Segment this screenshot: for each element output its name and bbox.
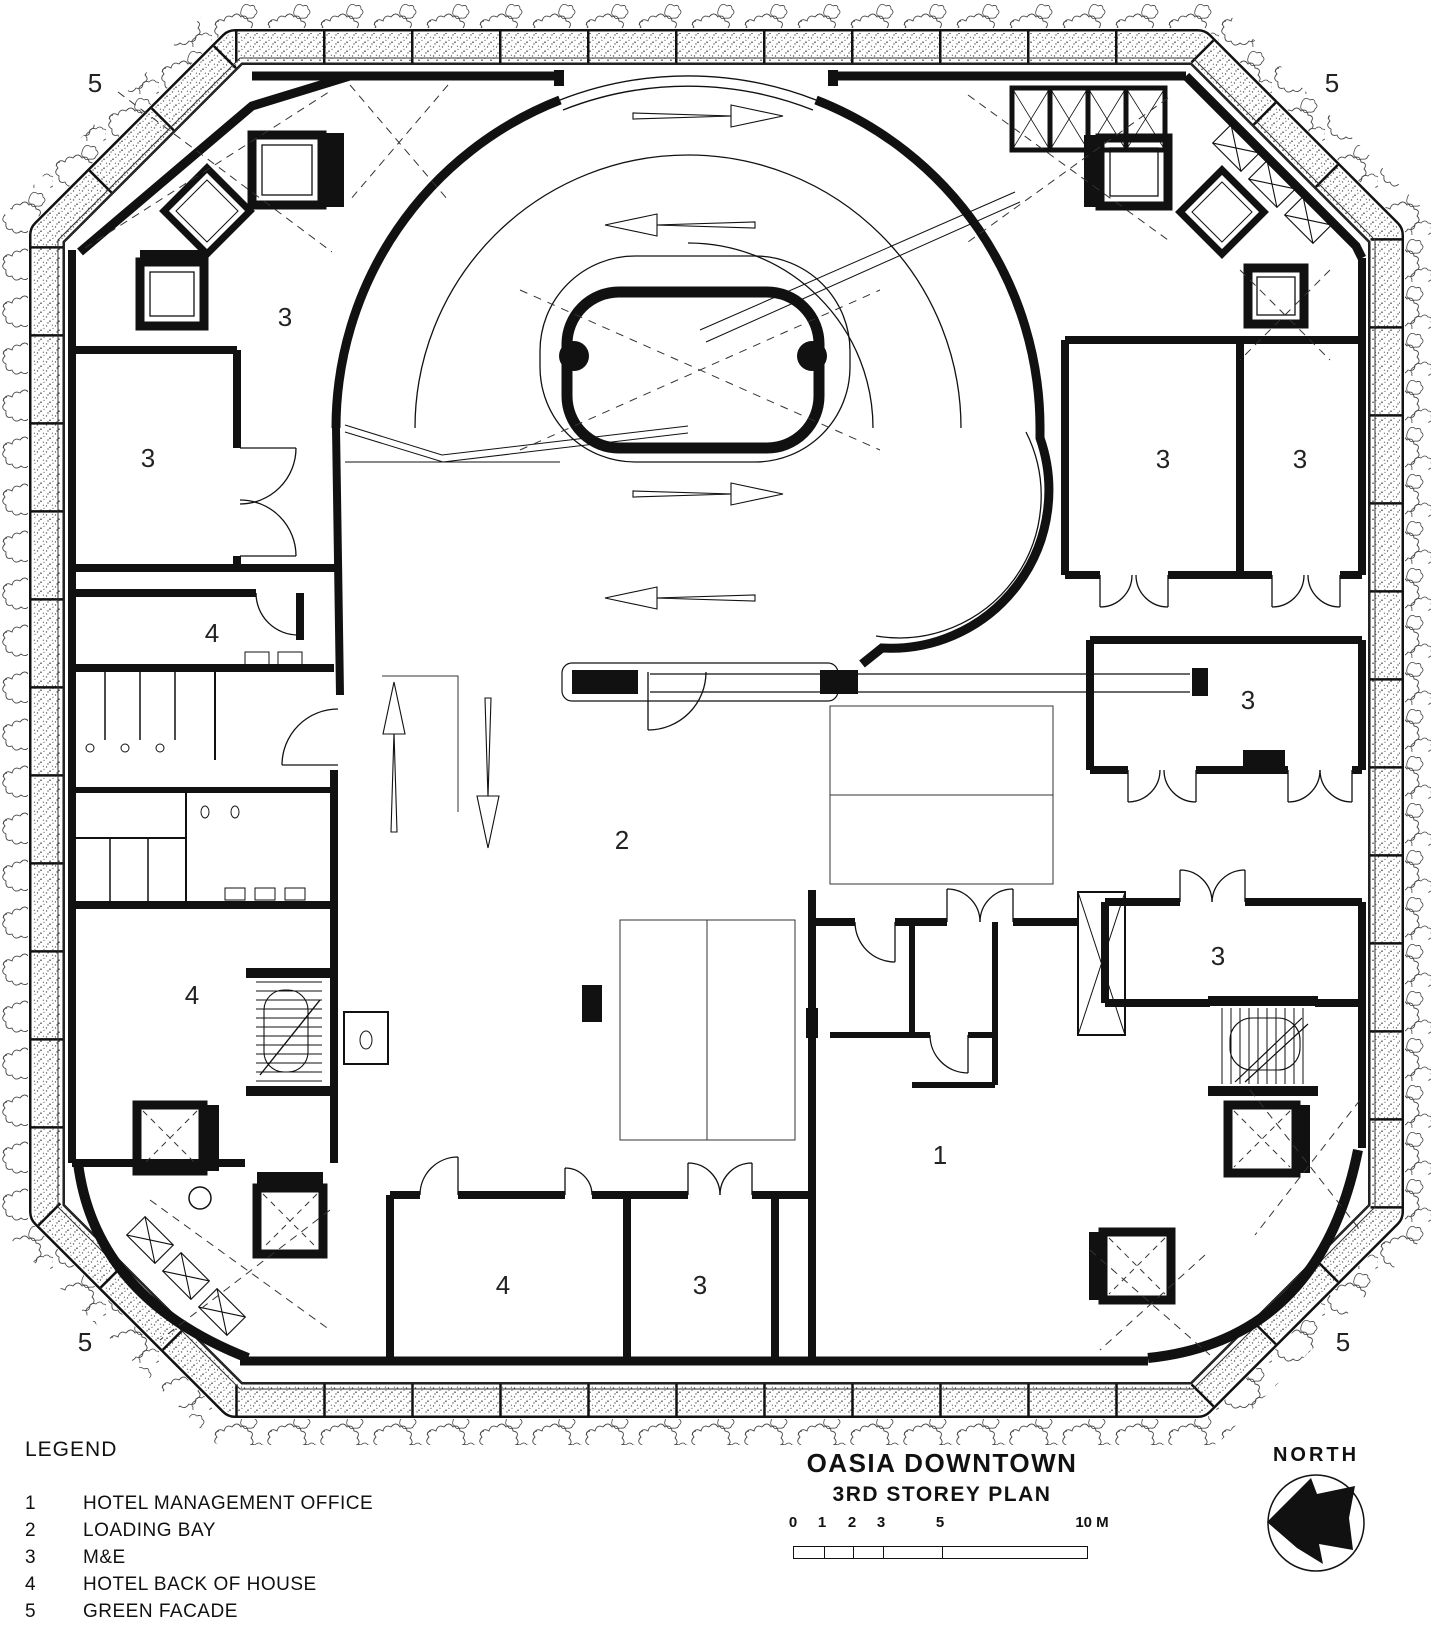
room-label: 4 — [185, 980, 199, 1010]
door-swings — [240, 448, 1352, 1195]
scale-bar-rule — [793, 1546, 1088, 1559]
north-indicator: NORTH — [1252, 1444, 1380, 1582]
room-label: 5 — [1325, 68, 1339, 98]
loading-bays — [382, 676, 1285, 1140]
north-arrow-icon — [1264, 1473, 1368, 1577]
north-label: NORTH — [1252, 1444, 1380, 1467]
legend-row: 3 M&E — [25, 1544, 373, 1571]
legend-row: 2 LOADING BAY — [25, 1517, 373, 1544]
traffic-direction-arrows — [383, 105, 783, 848]
legend: LEGEND 1 HOTEL MANAGEMENT OFFICE 2 LOADI… — [25, 1438, 373, 1626]
legend-row: 1 HOTEL MANAGEMENT OFFICE — [25, 1490, 373, 1517]
scale-tick-label: 3 — [877, 1514, 885, 1531]
legend-item-number: 1 — [25, 1490, 83, 1517]
lift-cluster-bottom-right — [1089, 1105, 1310, 1300]
loading-dock-wall — [562, 663, 1208, 701]
room-label: 5 — [78, 1327, 92, 1357]
room-label: 3 — [141, 443, 155, 473]
void-dashed-braces — [85, 85, 1360, 1355]
legend-item-label: LOADING BAY — [83, 1517, 373, 1544]
legend-item-number: 4 — [25, 1572, 83, 1599]
room-label: 1 — [933, 1140, 947, 1170]
stair-left — [246, 968, 332, 1096]
legend-item-label: M&E — [83, 1544, 373, 1571]
floor-plan-drawing: 5 5 3 3 4 2 4 3 3 3 3 1 4 3 5 5 — [0, 0, 1433, 1447]
room-label: 5 — [1336, 1327, 1350, 1357]
legend-item-label: HOTEL BACK OF HOUSE — [83, 1572, 373, 1599]
room-label: 3 — [278, 302, 292, 332]
room-label: 5 — [88, 68, 102, 98]
project-title: OASIA DOWNTOWN — [742, 1448, 1142, 1479]
room-label: 2 — [615, 825, 629, 855]
legend-title: LEGEND — [25, 1438, 373, 1462]
scale-tick-label: 5 — [936, 1514, 944, 1531]
legend-item-number: 5 — [25, 1599, 83, 1626]
vehicle-ramp — [336, 70, 1049, 664]
scale-tick-label: 1 — [818, 1514, 826, 1531]
room-label: 3 — [1156, 444, 1170, 474]
lift-cluster-top-left — [140, 133, 344, 326]
green-facade-planter-band — [47, 47, 1386, 1400]
toilet-fixtures — [72, 652, 388, 1064]
room-label: 4 — [496, 1270, 510, 1300]
legend-row: 5 GREEN FACADE — [25, 1599, 373, 1626]
room-label: 3 — [1241, 685, 1255, 715]
legend-item-number: 3 — [25, 1544, 83, 1571]
title-block: OASIA DOWNTOWN 3RD STOREY PLAN — [742, 1448, 1142, 1507]
room-label: 3 — [1211, 941, 1225, 971]
turntable-core — [520, 256, 880, 462]
scale-tick-label: 10 M — [1075, 1514, 1108, 1531]
legend-item-number: 2 — [25, 1517, 83, 1544]
room-label: 3 — [1293, 444, 1307, 474]
structural-walls — [72, 76, 1362, 1361]
scale-bar: 0 1 2 3 5 10 M — [770, 1514, 1130, 1574]
scale-tick-label: 0 — [789, 1514, 797, 1531]
lift-cluster-bottom-left — [137, 1105, 323, 1254]
legend-item-label: HOTEL MANAGEMENT OFFICE — [83, 1490, 373, 1517]
scale-tick-label: 2 — [848, 1514, 856, 1531]
room-label: 3 — [693, 1270, 707, 1300]
stair-right — [1208, 996, 1318, 1096]
sheet-title: 3RD STOREY PLAN — [742, 1483, 1142, 1507]
legend-item-label: GREEN FACADE — [83, 1599, 373, 1626]
legend-row: 4 HOTEL BACK OF HOUSE — [25, 1572, 373, 1599]
room-number-labels: 5 5 3 3 4 2 4 3 3 3 3 1 4 3 5 5 — [78, 68, 1350, 1357]
room-label: 4 — [205, 618, 219, 648]
